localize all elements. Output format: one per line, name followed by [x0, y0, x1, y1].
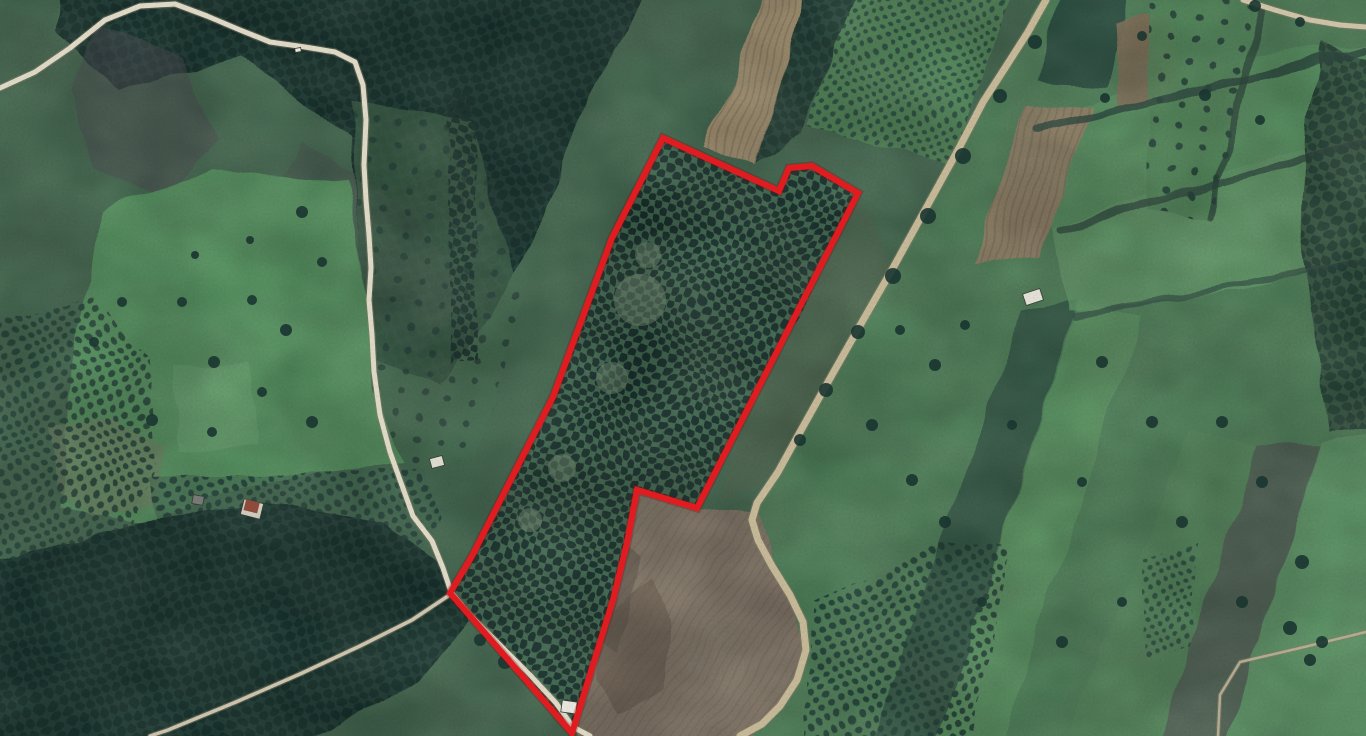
terrain-grain: [0, 0, 1366, 736]
satellite-imagery: [0, 0, 1366, 736]
satellite-map-canvas[interactable]: [0, 0, 1366, 736]
